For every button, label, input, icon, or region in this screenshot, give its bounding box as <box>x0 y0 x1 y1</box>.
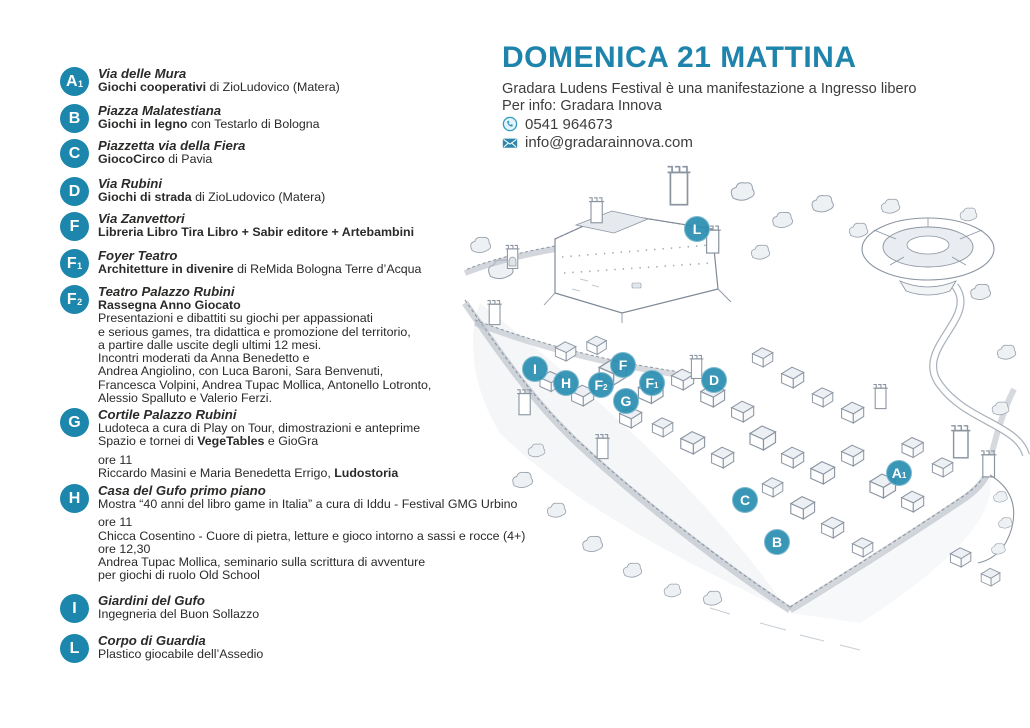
venue-name: Foyer Teatro <box>98 248 421 263</box>
town-map-illustration <box>460 153 1030 728</box>
header-block: DOMENICA 21 MATTINA Gradara Ludens Festi… <box>502 42 1022 151</box>
legend-item: F2Teatro Palazzo RubiniRassegna Anno Gio… <box>60 284 431 405</box>
legend-texts: Via RubiniGiochi di strada di ZioLudovic… <box>98 176 325 204</box>
legend-line: Ludoteca a cura di Play on Tour, dimostr… <box>98 422 420 435</box>
venue-name: Via Zanvettori <box>98 211 414 226</box>
legend-badge: F2 <box>60 285 89 314</box>
legend-line: Giochi cooperativi di ZioLudovico (Mater… <box>98 81 340 94</box>
legend-line: Ingegneria del Buon Sollazzo <box>98 608 259 621</box>
legend-badge: F <box>60 212 89 241</box>
legend-item: BPiazza MalatestianaGiochi in legno con … <box>60 103 320 133</box>
legend-badge: H <box>60 484 89 513</box>
legend-badge: F1 <box>60 249 89 278</box>
legend-texts: Giardini del GufoIngegneria del Buon Sol… <box>98 593 259 621</box>
venue-name: Piazza Malatestiana <box>98 103 320 118</box>
venue-name: Via delle Mura <box>98 66 340 81</box>
legend-item: HCasa del Gufo primo pianoMostra “40 ann… <box>60 483 525 583</box>
legend-item: F1Foyer TeatroArchitetture in divenire d… <box>60 248 421 278</box>
legend-badge: D <box>60 177 89 206</box>
legend-line: Libreria Libro Tira Libro + Sabir editor… <box>98 226 414 239</box>
legend-line: Francesca Volpini, Andrea Tupac Mollica,… <box>98 379 431 392</box>
legend-line: Incontri moderati da Anna Benedetto e <box>98 352 431 365</box>
phone-icon <box>502 116 518 132</box>
legend-badge: B <box>60 104 89 133</box>
venue-name: Teatro Palazzo Rubini <box>98 284 431 299</box>
email-row: info@gradarainnova.com <box>502 134 1022 151</box>
venue-name: Giardini del Gufo <box>98 593 259 608</box>
email-address: info@gradarainnova.com <box>525 134 693 151</box>
legend-badge: I <box>60 594 89 623</box>
legend-item: FVia ZanvettoriLibreria Libro Tira Libro… <box>60 211 414 241</box>
legend-line: Presentazioni e dibattiti su giochi per … <box>98 312 431 325</box>
legend-texts: Via ZanvettoriLibreria Libro Tira Libro … <box>98 211 414 239</box>
legend-item: A1Via delle MuraGiochi cooperativi di Zi… <box>60 66 340 96</box>
venue-name: Corpo di Guardia <box>98 633 263 648</box>
venue-name: Cortile Palazzo Rubini <box>98 407 420 422</box>
legend-line: e serious games, tra didattica e promozi… <box>98 326 431 339</box>
info-line-1: Gradara Ludens Festival è una manifestaz… <box>502 81 1022 98</box>
legend-line: Architetture in divenire di ReMida Bolog… <box>98 263 421 276</box>
legend-badge: C <box>60 139 89 168</box>
legend-texts: Foyer TeatroArchitetture in divenire di … <box>98 248 421 276</box>
flyer-page: A1Via delle MuraGiochi cooperativi di Zi… <box>0 0 1030 728</box>
legend-texts: Teatro Palazzo RubiniRassegna Anno Gioca… <box>98 284 431 405</box>
phone-number: 0541 964673 <box>525 116 613 133</box>
legend-line: ore 11 <box>98 454 420 467</box>
legend-badge: A1 <box>60 67 89 96</box>
legend-line: Plastico giocabile dell’Assedio <box>98 648 263 661</box>
legend-item: LCorpo di GuardiaPlastico giocabile dell… <box>60 633 263 663</box>
legend-texts: Piazza MalatestianaGiochi in legno con T… <box>98 103 320 131</box>
legend-line: Andrea Angiolino, con Luca Baroni, Sara … <box>98 365 431 378</box>
town-map <box>460 153 1030 728</box>
legend-list: A1Via delle MuraGiochi cooperativi di Zi… <box>0 0 470 728</box>
legend-line: a partire dalle uscite degli ultimi 12 m… <box>98 339 431 352</box>
legend-texts: Via delle MuraGiochi cooperativi di ZioL… <box>98 66 340 94</box>
legend-item: DVia RubiniGiochi di strada di ZioLudovi… <box>60 176 325 206</box>
info-line-2: Per info: Gradara Innova <box>502 98 1022 115</box>
legend-texts: Piazzetta via della FieraGiocoCirco di P… <box>98 138 245 166</box>
phone-row: 0541 964673 <box>502 116 1022 133</box>
legend-line: Spazio e tornei di VegeTables e GioGra <box>98 435 420 448</box>
venue-name: Piazzetta via della Fiera <box>98 138 245 153</box>
legend-line: Riccardo Masini e Maria Benedetta Errigo… <box>98 467 420 480</box>
legend-texts: Cortile Palazzo RubiniLudoteca a cura di… <box>98 407 420 480</box>
legend-line: GiocoCirco di Pavia <box>98 153 245 166</box>
venue-name: Via Rubini <box>98 176 325 191</box>
legend-line: Giochi in legno con Testarlo di Bologna <box>98 118 320 131</box>
legend-line: Giochi di strada di ZioLudovico (Matera) <box>98 191 325 204</box>
email-icon <box>502 135 518 151</box>
legend-badge: L <box>60 634 89 663</box>
legend-badge: G <box>60 408 89 437</box>
legend-line: Rassegna Anno Giocato <box>98 299 431 312</box>
page-title: DOMENICA 21 MATTINA <box>502 42 1022 74</box>
legend-line: Alessio Spalluto e Valerio Ferzi. <box>98 392 431 405</box>
legend-item: CPiazzetta via della FieraGiocoCirco di … <box>60 138 245 168</box>
legend-texts: Corpo di GuardiaPlastico giocabile dell’… <box>98 633 263 661</box>
legend-item: IGiardini del GufoIngegneria del Buon So… <box>60 593 259 623</box>
legend-item: GCortile Palazzo RubiniLudoteca a cura d… <box>60 407 420 480</box>
header-info: Gradara Ludens Festival è una manifestaz… <box>502 81 1022 114</box>
